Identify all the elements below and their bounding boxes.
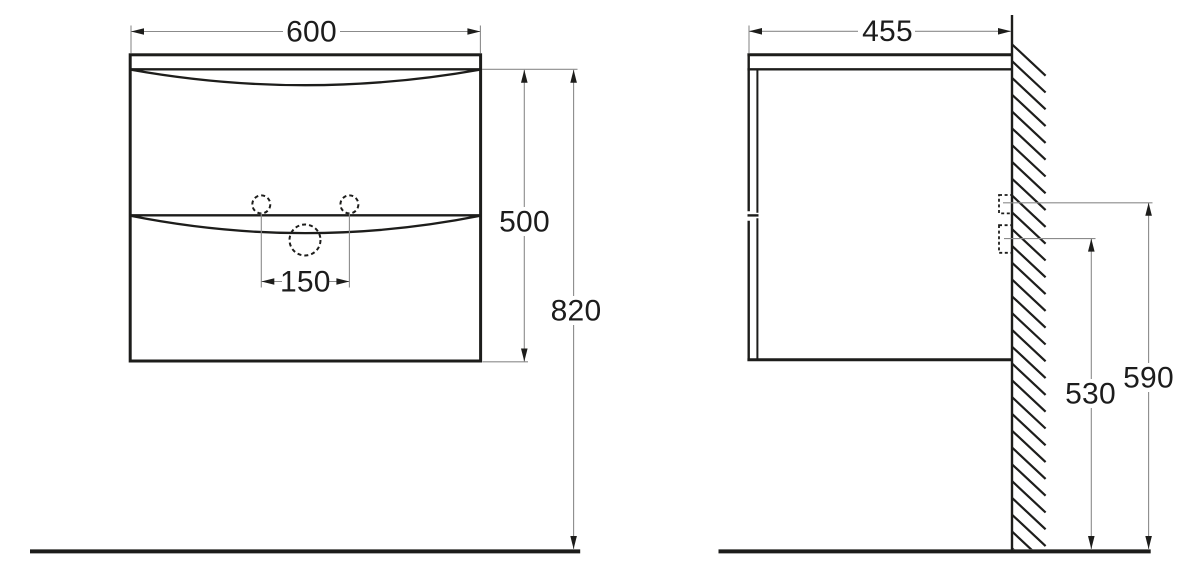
- svg-text:590: 590: [1123, 361, 1174, 394]
- svg-text:530: 530: [1065, 377, 1116, 410]
- svg-text:150: 150: [280, 265, 331, 298]
- svg-text:455: 455: [862, 15, 913, 48]
- svg-text:600: 600: [286, 15, 337, 48]
- svg-text:500: 500: [499, 205, 550, 238]
- svg-text:820: 820: [551, 294, 602, 327]
